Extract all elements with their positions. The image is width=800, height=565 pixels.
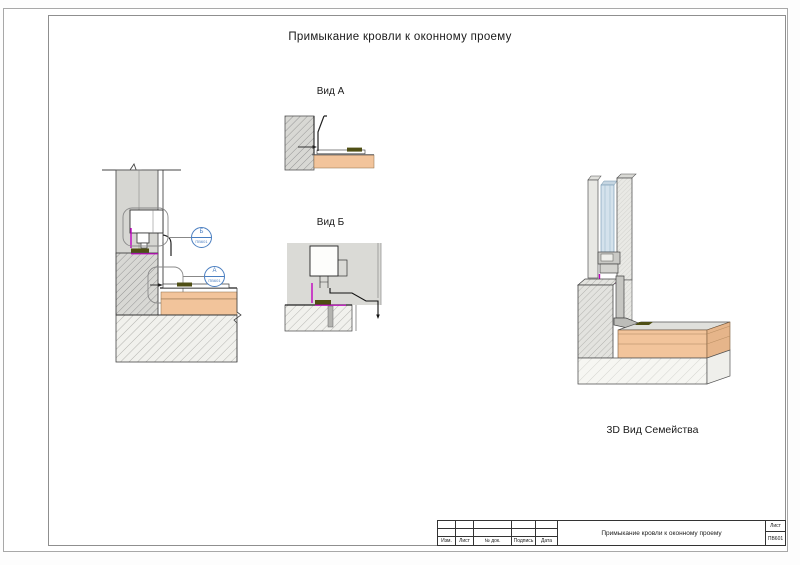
title-block: Изм. Лист № док. Подпись Дата Примыкание… xyxy=(437,520,786,546)
slab-hatch xyxy=(285,305,356,331)
tb-col-ndok: № док. xyxy=(474,537,512,545)
callout-sheet-ref-b: ПВ601 xyxy=(192,238,211,246)
main-section-detail-drawing xyxy=(95,158,245,368)
callout-letter-a: А xyxy=(205,267,224,277)
tb-sheet-number: ПВ601 xyxy=(766,532,785,545)
tb-col-izm: Изм. xyxy=(438,537,456,545)
title-block-sheet-cell: Лист ПВ601 xyxy=(765,521,785,545)
wall-hatch xyxy=(285,116,314,170)
tb-col-podpis: Подпись xyxy=(512,537,536,545)
callout-sheet-ref-a: ПВ601 xyxy=(205,277,224,285)
tb-sheet-label: Лист xyxy=(766,521,785,532)
leader-line-b xyxy=(168,237,191,238)
roof-assembly-3d xyxy=(618,322,730,358)
view-a-drawing xyxy=(283,112,378,178)
frame-bottom-profile xyxy=(598,252,620,273)
sheet-title: Примыкание кровли к оконному проему xyxy=(50,31,750,43)
callout-letter-b: Б xyxy=(192,228,211,238)
anchor-bolt xyxy=(328,306,333,327)
family-3d-view-drawing xyxy=(570,172,735,387)
title-block-revision-table: Изм. Лист № док. Подпись Дата xyxy=(438,521,558,545)
roof-assembly xyxy=(160,283,237,316)
parapet-hatch xyxy=(116,253,158,315)
flashing-line xyxy=(318,116,327,151)
tb-col-list: Лист xyxy=(456,537,474,545)
view-3d-label: 3D Вид Семейства xyxy=(570,424,735,436)
title-block-title: Примыкание кровли к оконному проему xyxy=(558,521,765,545)
view-b-label: Вид Б xyxy=(283,217,378,228)
view-b-drawing xyxy=(283,242,388,334)
tb-col-data: Дата xyxy=(536,537,558,545)
section-callout-a: А ПВ601 xyxy=(204,266,225,287)
roof-layers xyxy=(312,148,374,168)
leader-line-a xyxy=(183,276,204,277)
view-a-label: Вид А xyxy=(283,86,378,97)
section-callout-b: Б ПВ601 xyxy=(191,227,212,248)
glazing xyxy=(601,181,617,252)
flashing-line xyxy=(163,235,171,285)
